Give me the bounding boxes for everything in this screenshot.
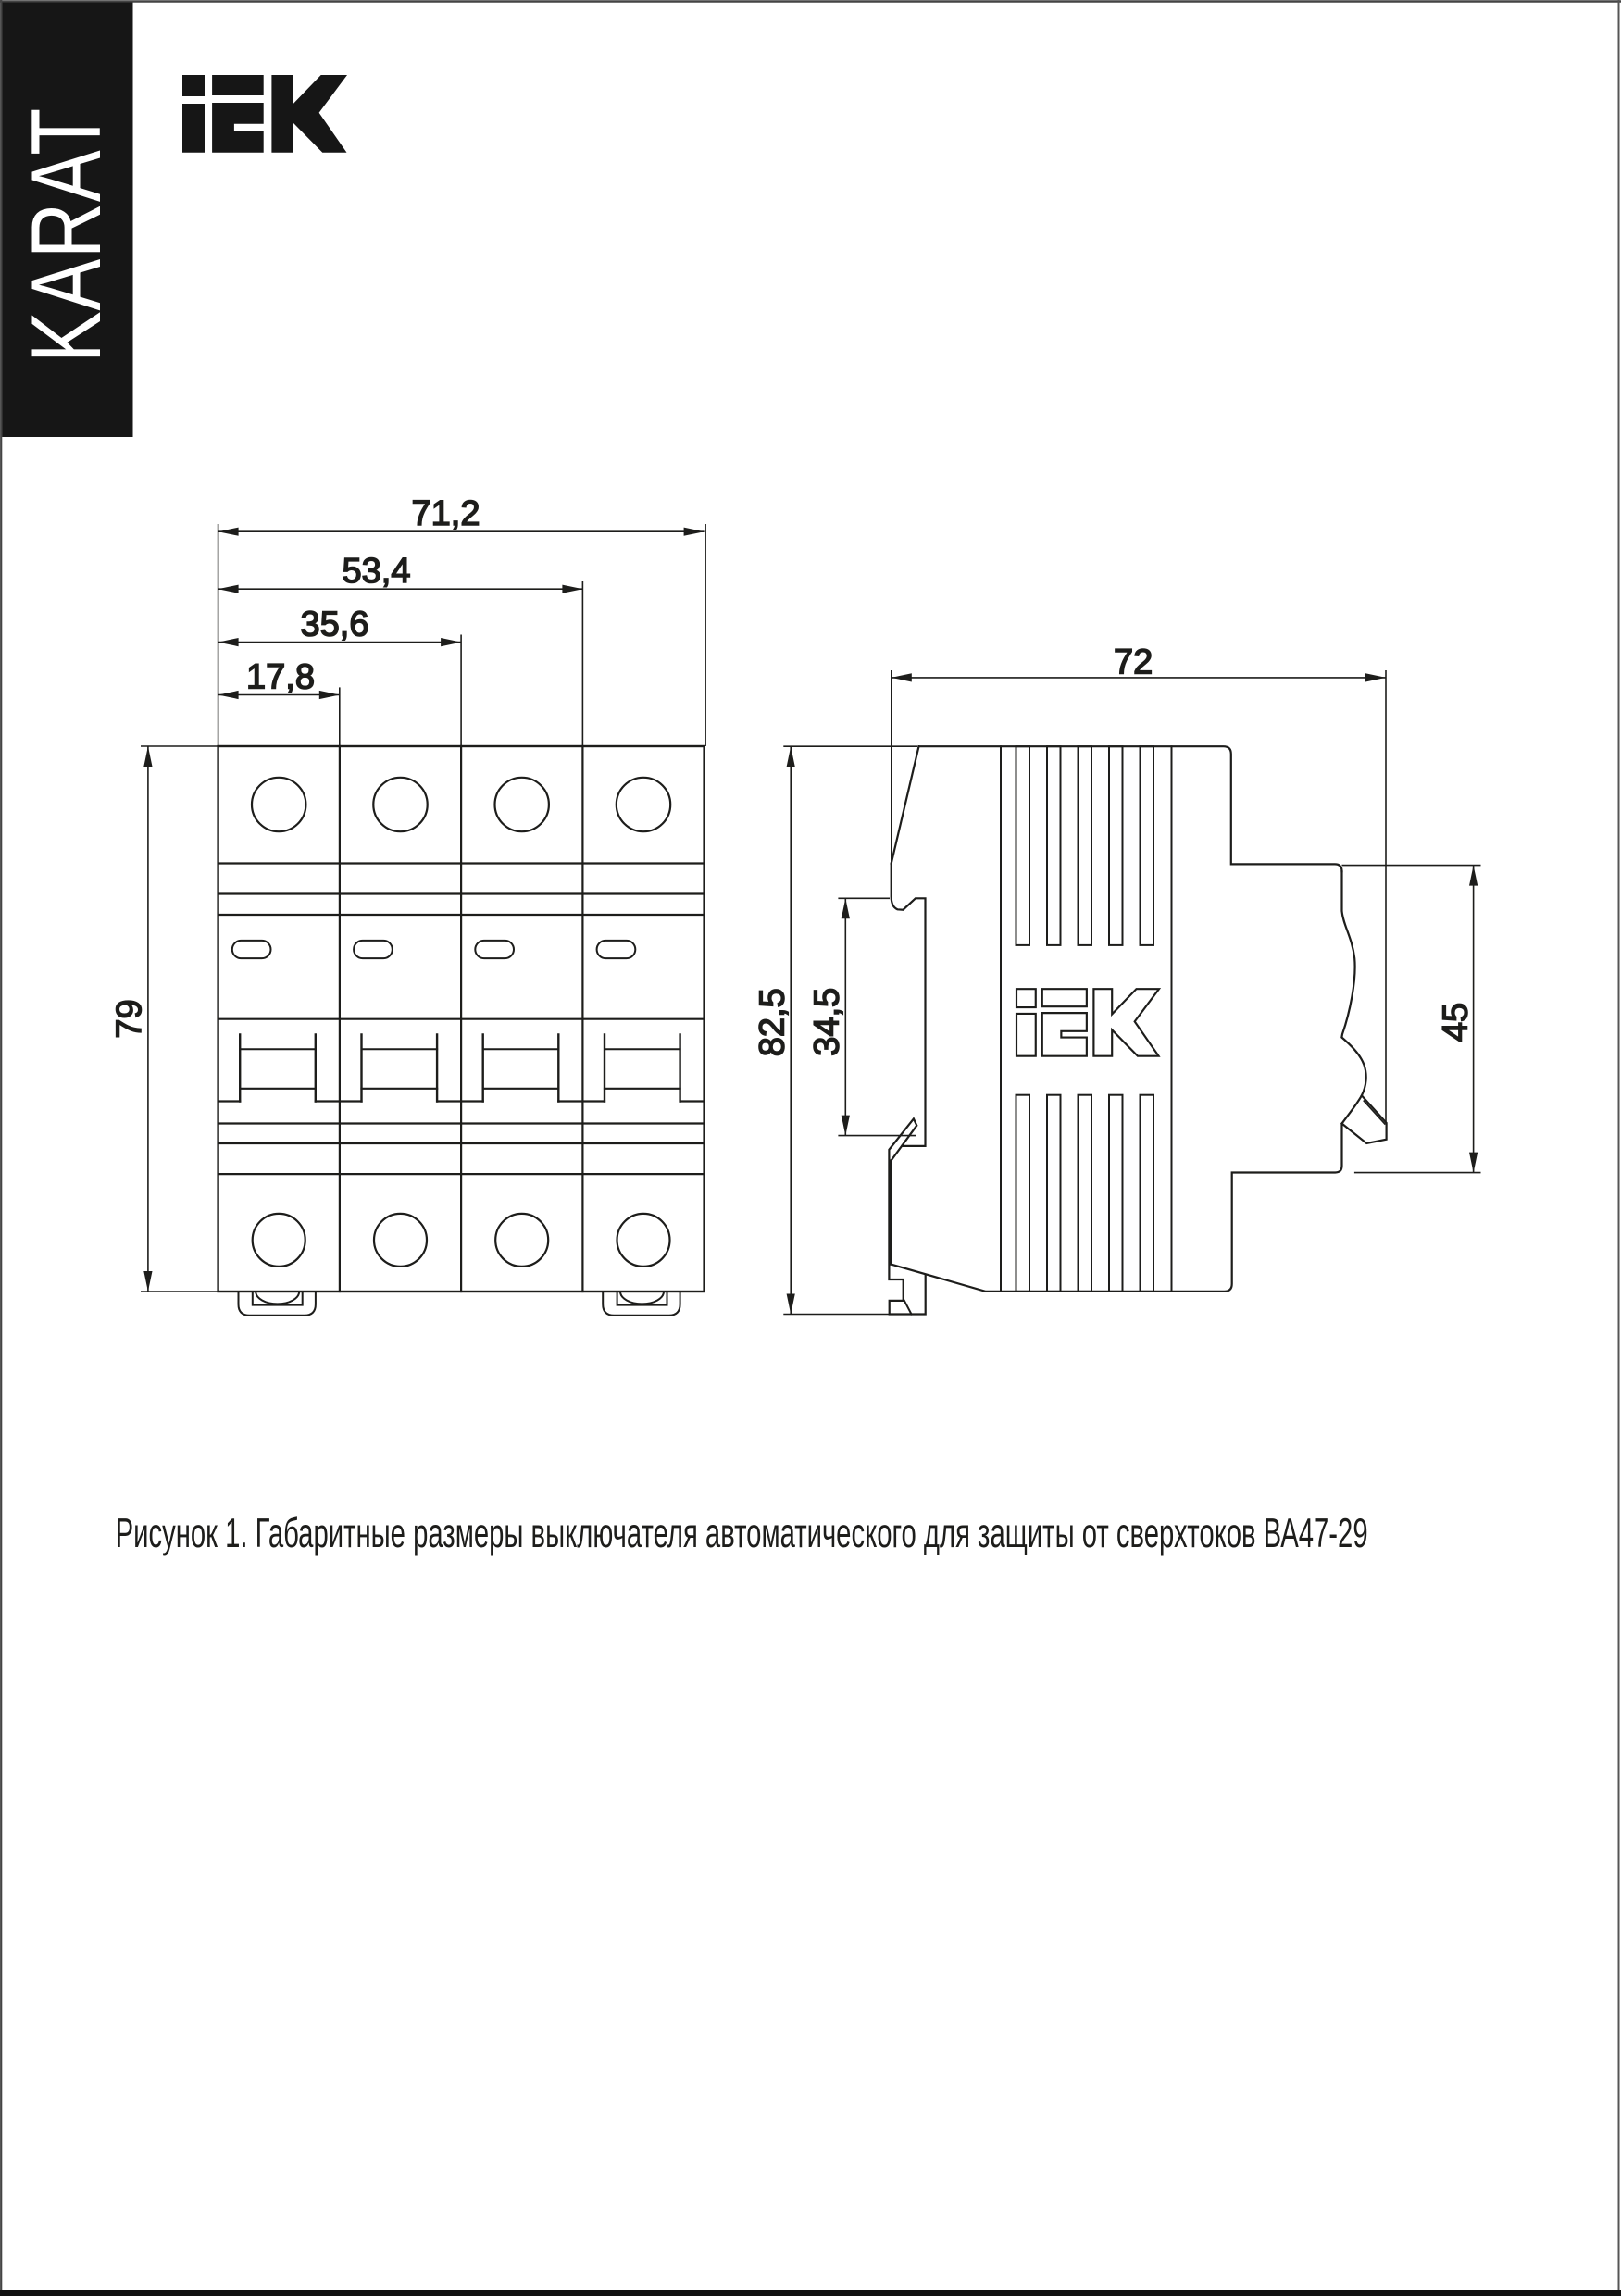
svg-text:35,6: 35,6: [301, 605, 369, 643]
svg-text:Рисунок 1. Габаритные размеры: Рисунок 1. Габаритные размеры выключател…: [116, 1511, 1368, 1556]
svg-text:79: 79: [110, 999, 149, 1038]
svg-text:34,5: 34,5: [808, 988, 847, 1056]
svg-text:53,4: 53,4: [343, 552, 411, 591]
svg-text:17,8: 17,8: [246, 657, 315, 696]
svg-text:72: 72: [1114, 643, 1153, 681]
svg-text:KARAT: KARAT: [11, 107, 121, 363]
svg-text:45: 45: [1437, 1003, 1476, 1042]
svg-text:71,2: 71,2: [412, 494, 480, 533]
svg-text:82,5: 82,5: [753, 988, 792, 1056]
